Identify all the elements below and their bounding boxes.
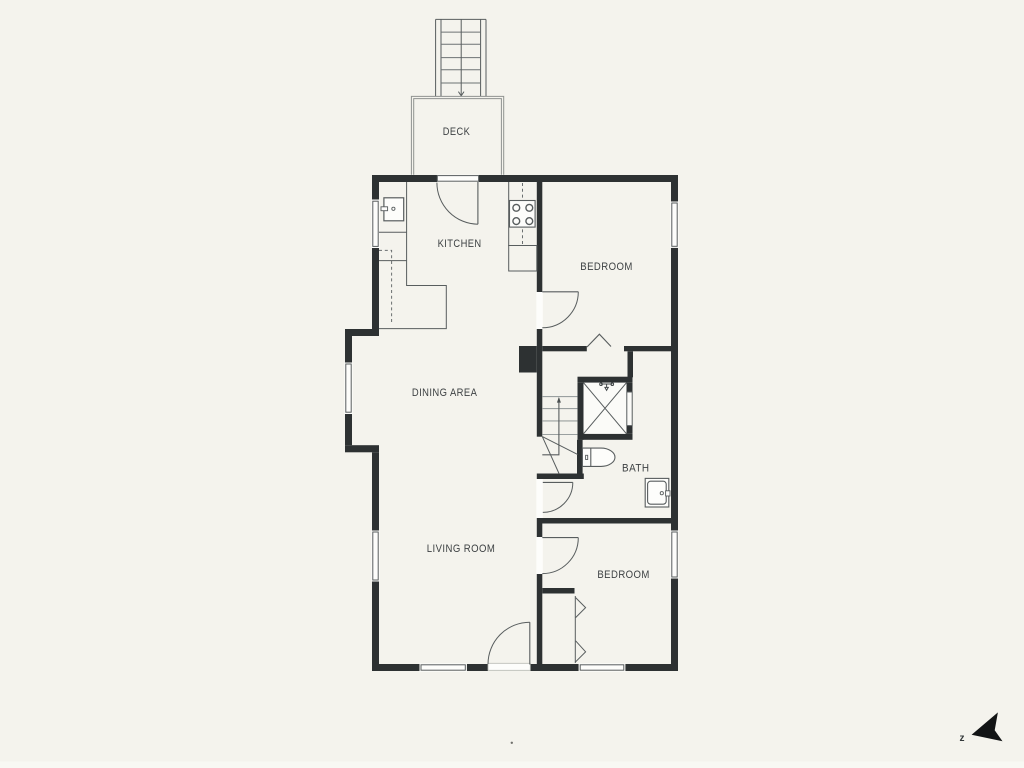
svg-text:BEDROOM: BEDROOM — [580, 261, 633, 273]
svg-text:BEDROOM: BEDROOM — [597, 569, 650, 581]
svg-text:LIVING ROOM: LIVING ROOM — [427, 543, 496, 555]
svg-text:KITCHEN: KITCHEN — [438, 238, 482, 250]
svg-text:DECK: DECK — [443, 126, 471, 138]
svg-text:BATH: BATH — [622, 462, 650, 474]
svg-text:z: z — [960, 733, 965, 744]
svg-text:DINING AREA: DINING AREA — [412, 387, 478, 399]
